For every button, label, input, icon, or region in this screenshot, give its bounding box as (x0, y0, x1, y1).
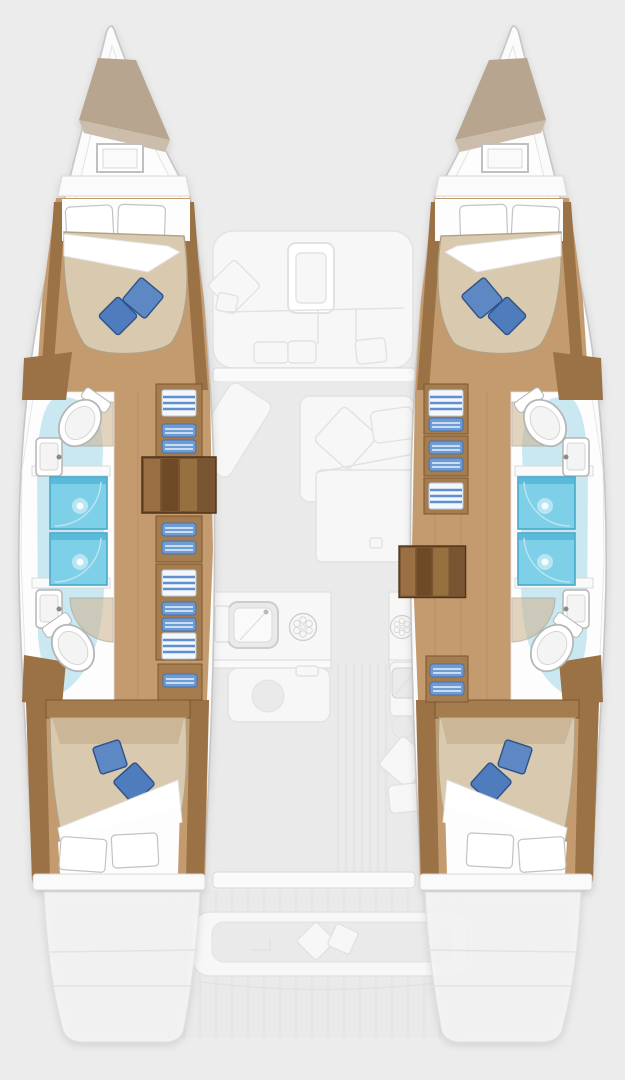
transom-steps (44, 892, 200, 1042)
shower-stall (50, 477, 107, 529)
sink (36, 438, 62, 476)
salon-aft-wall (213, 872, 415, 888)
deck-hatch-glass (296, 253, 326, 303)
wardrobe (424, 384, 468, 434)
chart-seat (252, 680, 284, 712)
companionway-stripes (338, 664, 386, 872)
white-pillow (111, 833, 159, 868)
wardrobe (156, 564, 202, 660)
floor-plan-canvas (0, 0, 625, 1080)
bow-hatch-glass (103, 149, 137, 168)
wardrobe (426, 656, 468, 702)
stern-platform (44, 892, 200, 1042)
aft-cabin (26, 700, 209, 890)
dish-rack (215, 606, 229, 642)
seat-cushion (254, 342, 288, 363)
stove-burner-icon (391, 616, 414, 639)
seat-cushion (355, 337, 387, 364)
shower-stall (50, 533, 107, 585)
stern-deck-band (33, 874, 205, 890)
catamaran-floor-plan (0, 0, 625, 1080)
lounge-pillow (370, 406, 416, 444)
galley-faucet (264, 610, 269, 615)
salon-front-window-band (213, 368, 415, 382)
wardrobe (158, 664, 202, 700)
seat-cushion (288, 341, 316, 363)
wardrobe (156, 384, 202, 458)
wardrobe (156, 516, 202, 562)
vanity-cabinet (22, 352, 72, 400)
headboard-shelf (46, 700, 190, 718)
stove-burner-icon (290, 614, 317, 641)
companionway-steps (142, 457, 216, 513)
desk-detail (296, 666, 318, 676)
companionway-steps (399, 546, 466, 598)
foredeck-band (58, 176, 190, 196)
cockpit-cushion-small (215, 292, 238, 314)
wardrobe (424, 436, 468, 476)
lounge-detail (370, 538, 382, 548)
wet-bar-burner (392, 716, 414, 738)
forward-cockpit (207, 231, 413, 368)
white-pillow (59, 836, 107, 872)
wardrobe (424, 478, 468, 514)
